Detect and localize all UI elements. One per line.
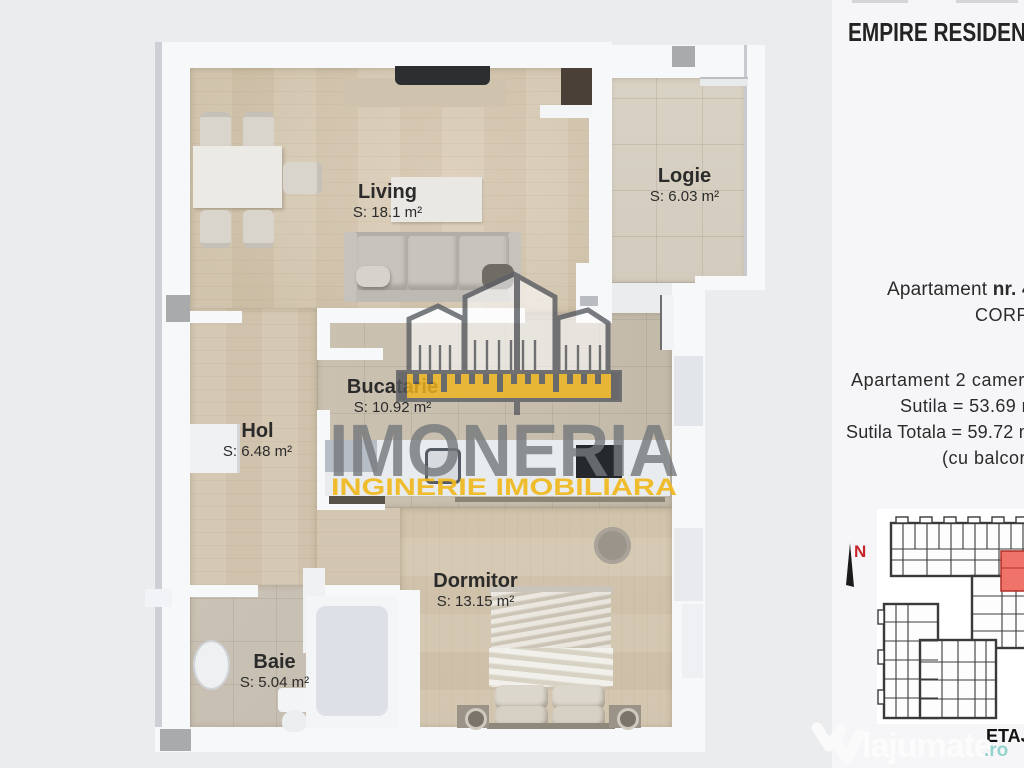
svg-text:lajumate: lajumate [862, 727, 992, 765]
svg-text:N: N [854, 542, 866, 561]
svg-text:INGINERIE IMOBILIARA: INGINERIE IMOBILIARA [331, 474, 677, 501]
svg-text:.ro: .ro [984, 740, 1008, 761]
